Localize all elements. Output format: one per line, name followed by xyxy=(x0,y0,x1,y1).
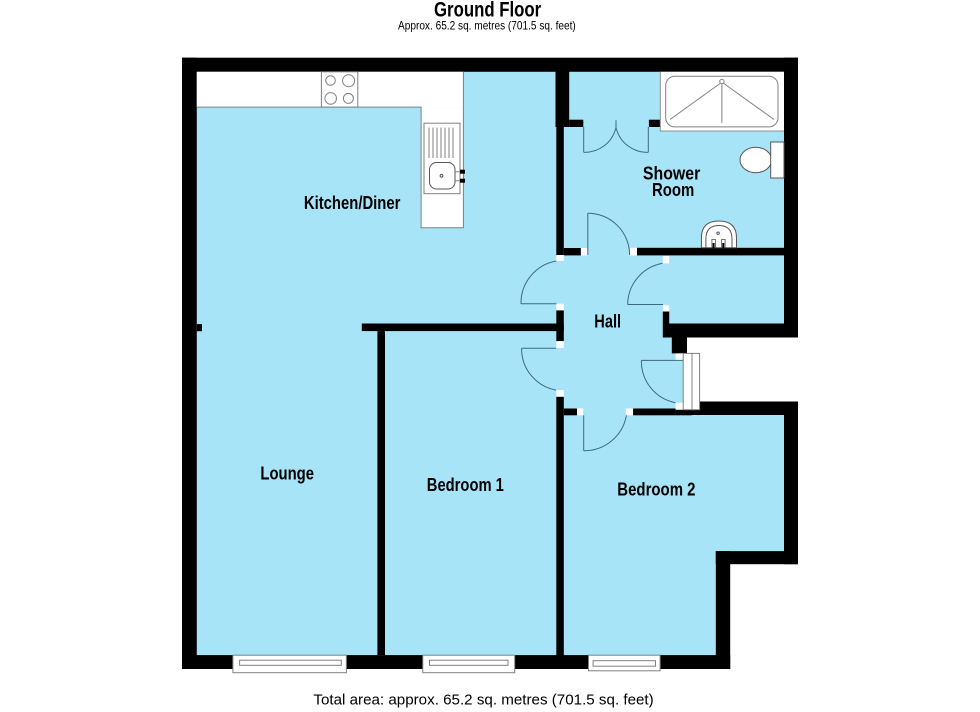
svg-text:Room: Room xyxy=(652,180,694,200)
svg-text:Hall: Hall xyxy=(594,312,621,332)
svg-text:Bedroom 2: Bedroom 2 xyxy=(617,479,695,499)
svg-text:Approx. 65.2 sq. metres (701.5: Approx. 65.2 sq. metres (701.5 sq. feet) xyxy=(398,18,576,32)
svg-text:Bedroom 1: Bedroom 1 xyxy=(427,475,504,495)
svg-text:Lounge: Lounge xyxy=(260,463,314,483)
svg-text:Total area: approx. 65.2 sq. m: Total area: approx. 65.2 sq. metres (701… xyxy=(313,691,653,708)
svg-text:Kitchen/Diner: Kitchen/Diner xyxy=(304,193,401,213)
